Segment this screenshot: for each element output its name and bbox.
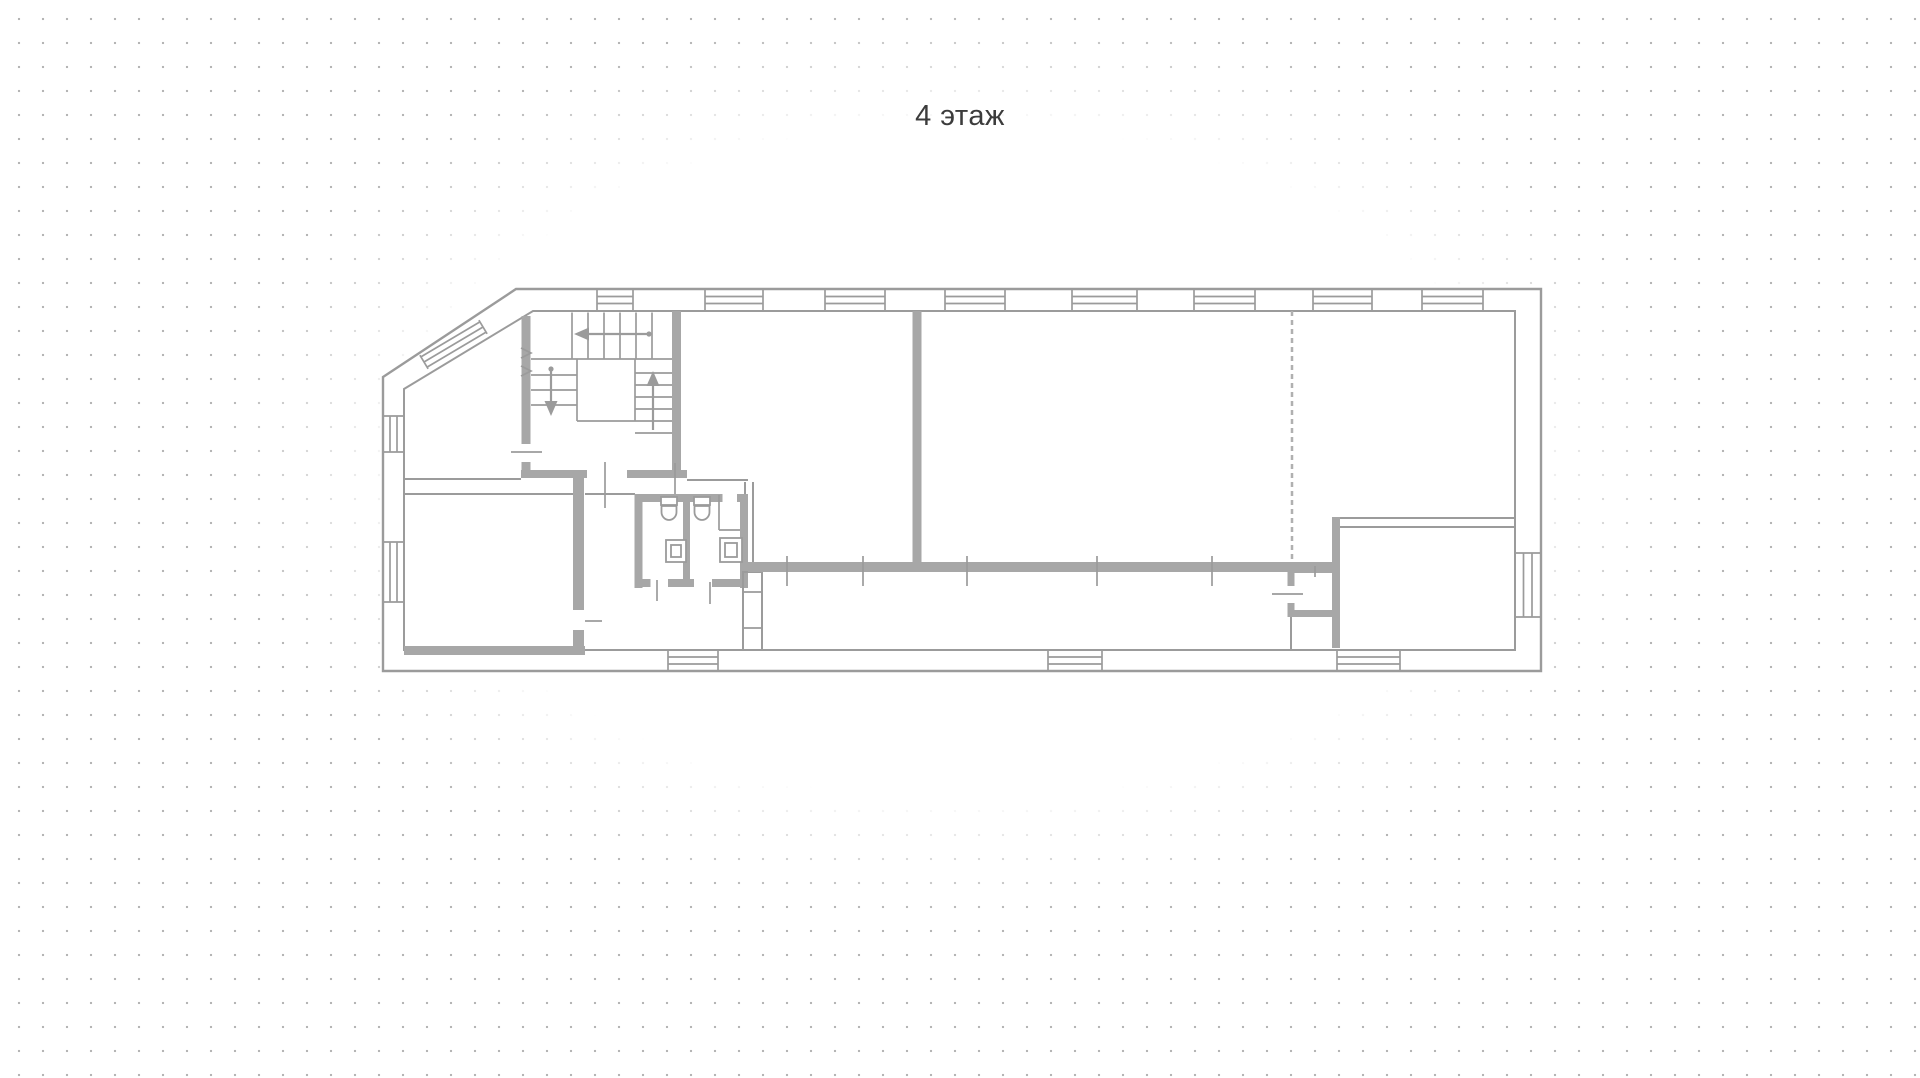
sink-icon xyxy=(720,538,742,562)
floor-plan-drawing xyxy=(0,0,1920,1078)
toilet-icon xyxy=(694,497,710,520)
exterior-walls xyxy=(383,289,1541,671)
toilet-icon xyxy=(661,497,677,520)
sink-icon xyxy=(666,540,686,562)
